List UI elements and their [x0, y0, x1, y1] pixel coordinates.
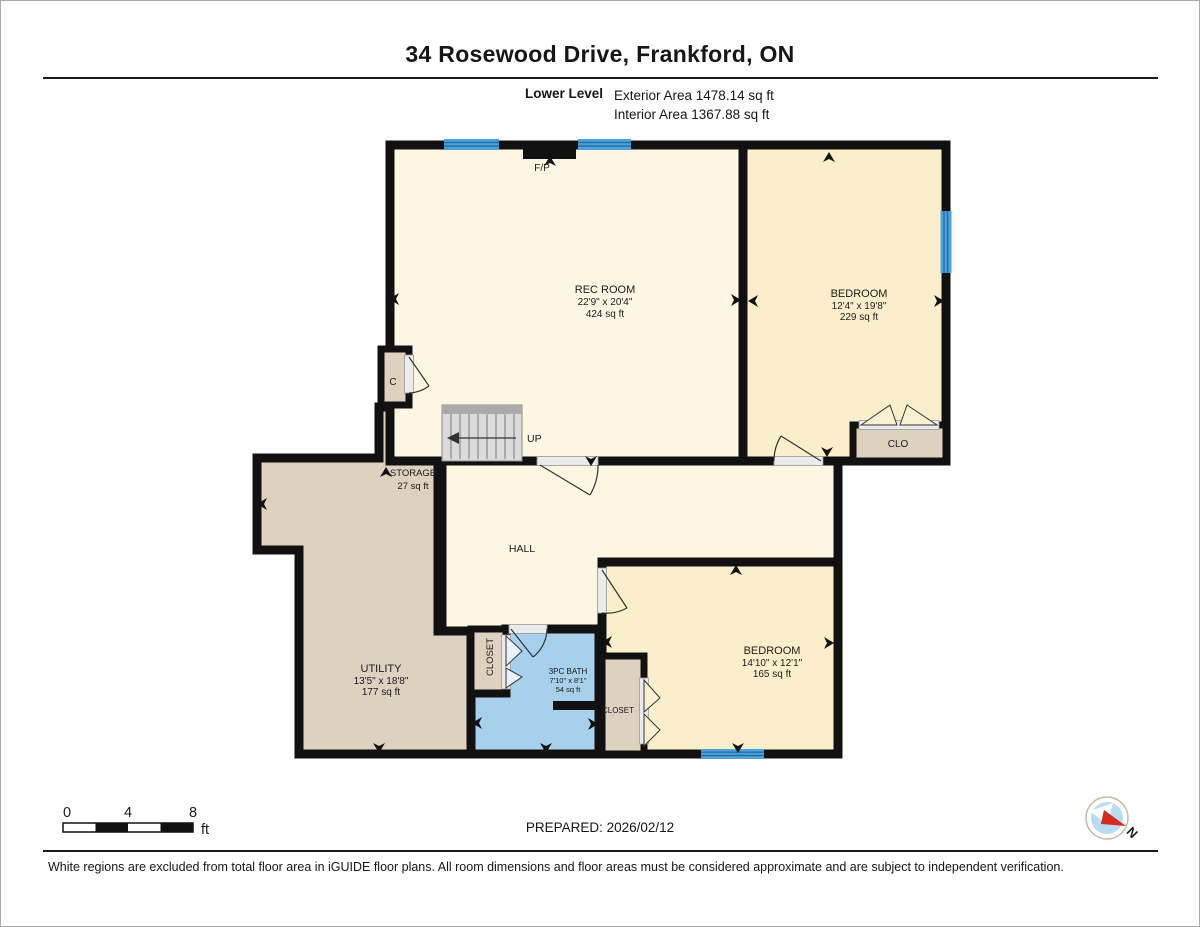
- window: [701, 749, 764, 759]
- rec-room-area: 424 sq ft: [586, 309, 625, 320]
- floorplan-drawing: F/P REC ROOM 22'9" x 20'4" 424 sq ft BED…: [1, 1, 1200, 927]
- storage-area: 27 sq ft: [397, 481, 429, 492]
- storage-name: STORAGE: [390, 468, 436, 479]
- bedroom1-name: BEDROOM: [831, 288, 888, 300]
- window: [941, 211, 952, 273]
- bedroom2-name: BEDROOM: [744, 645, 801, 657]
- stairs-up-label: UP: [527, 433, 542, 445]
- bath-dims: 7'10" x 8'1": [550, 676, 587, 685]
- bath-partition-wall: [553, 701, 599, 710]
- fireplace-label: F/P: [534, 163, 550, 174]
- bedroom2-closet-shape: [602, 656, 644, 754]
- hall-label: HALL: [509, 543, 535, 555]
- scale-tick-4: 4: [124, 805, 132, 821]
- bedroom2-closet-label: CLOSET: [602, 706, 634, 715]
- bedroom1-area: 229 sq ft: [840, 312, 879, 323]
- bedroom2-dims: 14'10" x 12'1": [742, 658, 803, 669]
- utility-name: UTILITY: [361, 663, 403, 675]
- floorplan-page: 34 Rosewood Drive, Frankford, ON Lower L…: [0, 0, 1200, 927]
- scale-tick-8: 8: [189, 805, 197, 821]
- rec-room-name: REC ROOM: [575, 284, 636, 296]
- bath-area: 54 sq ft: [556, 685, 582, 694]
- bedroom1-dims: 12'4" x 19'8": [832, 301, 887, 312]
- scale-tick-0: 0: [63, 805, 71, 821]
- footer-divider: [43, 850, 1158, 852]
- bath-name: 3PC BATH: [549, 667, 588, 676]
- window: [444, 139, 499, 150]
- window: [578, 139, 631, 150]
- disclaimer-text: White regions are excluded from total fl…: [48, 860, 1148, 874]
- utility-area: 177 sq ft: [362, 687, 401, 698]
- bedroom2-area: 165 sq ft: [753, 669, 792, 680]
- hall-closet-label: CLOSET: [485, 638, 496, 676]
- utility-dims: 13'5" x 18'8": [354, 676, 409, 687]
- clo-label: CLO: [888, 439, 909, 450]
- prepared-date: PREPARED: 2026/02/12: [1, 820, 1199, 835]
- staircase: [442, 405, 522, 461]
- c-closet-label: C: [389, 377, 396, 388]
- rec-room-dims: 22'9" x 20'4": [578, 297, 633, 308]
